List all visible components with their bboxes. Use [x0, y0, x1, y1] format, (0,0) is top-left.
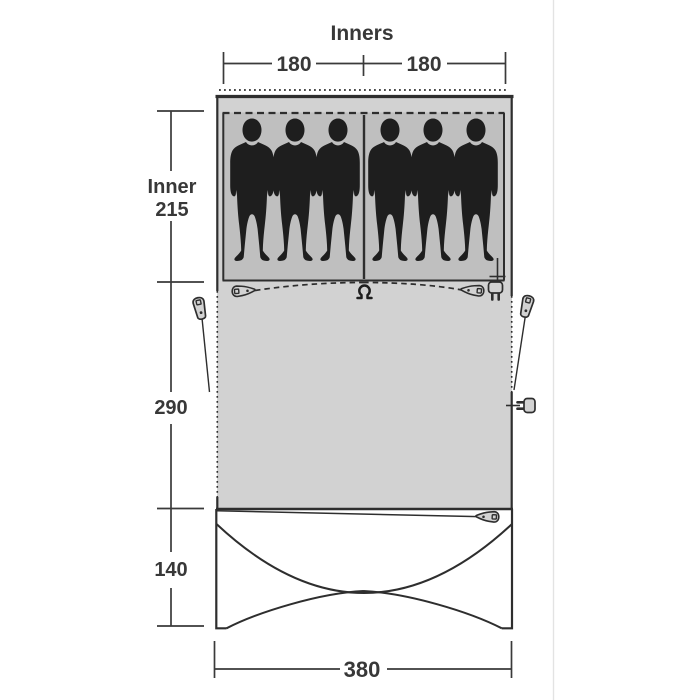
tent-floorplan-image[interactable]: Inners 180 180 Inner 215 290 140 380 — [0, 0, 700, 700]
zipper-pull-icon — [476, 511, 499, 522]
inner-depth-word: Inner — [148, 176, 197, 198]
inner-width-left-label: 180 — [276, 53, 311, 76]
guyline-left — [192, 297, 209, 392]
living-depth-label: 290 — [154, 397, 187, 419]
dimension-depths: Inner 215 290 140 — [148, 111, 204, 626]
total-width-label: 380 — [344, 657, 381, 682]
power-plug-icon — [518, 399, 536, 413]
inner-depth-value: 215 — [155, 199, 188, 221]
inner-width-right-label: 180 — [406, 53, 441, 76]
guyline-right — [514, 295, 535, 390]
guyline-peg-icon — [519, 295, 535, 319]
inner-tents — [223, 113, 505, 281]
front-door-zipper — [217, 511, 499, 522]
canopy-depth-label: 140 — [154, 559, 187, 581]
inners-title: Inners — [330, 22, 393, 45]
dimension-total-width: 380 — [215, 641, 512, 682]
guyline-peg-icon — [192, 297, 207, 321]
dimension-inner-widths: 180 180 — [224, 52, 506, 84]
front-canopy — [216, 509, 512, 628]
floorplan-svg: Inners 180 180 Inner 215 290 140 380 — [0, 0, 700, 700]
